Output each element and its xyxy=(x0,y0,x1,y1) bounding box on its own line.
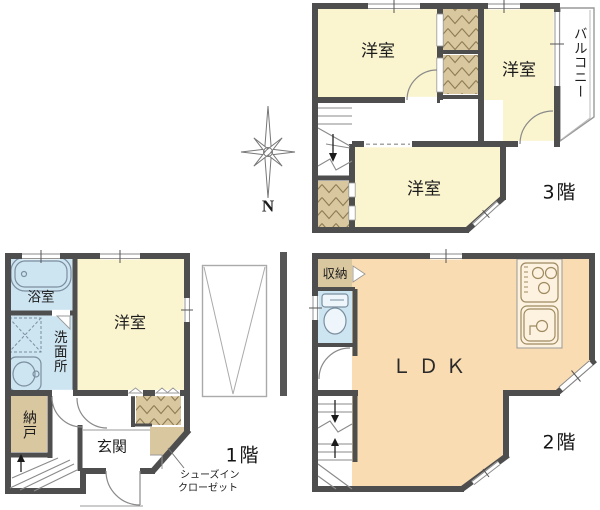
boundary-wall xyxy=(280,252,287,396)
floor3-label: 3階 xyxy=(542,184,577,203)
floor3-room-top-left-label: 洋室 xyxy=(361,44,395,61)
shoe-closet-label-line2: クローゼット xyxy=(178,484,238,494)
floor2-storage-label: 収納 xyxy=(322,268,347,281)
shoe-closet-leader-line xyxy=(168,448,184,468)
floor-plan-canvas: 洋室 洋室 洋室 バルコニー 3階 浴室 洗面所 洋室 納戸 玄関 シューズイン… xyxy=(0,0,600,510)
bathroom-label: 浴室 xyxy=(28,291,55,305)
floor2-label: 2階 xyxy=(542,434,577,453)
closet-icon xyxy=(136,396,181,425)
floor3-room-top-right-label: 洋室 xyxy=(502,63,536,80)
washroom-label: 洗面所 xyxy=(51,330,65,374)
floor3-room-bottom-label: 洋室 xyxy=(407,182,441,199)
toilet-icon xyxy=(322,294,348,334)
compass-icon xyxy=(241,106,295,198)
stairs-down-arrow xyxy=(329,153,337,162)
ldk-label: ＬＤＫ xyxy=(392,356,473,376)
parking-space-icon xyxy=(203,266,267,397)
storage-room-label: 納戸 xyxy=(22,410,36,440)
balcony-label: バルコニー xyxy=(571,27,585,100)
compass-north-label: N xyxy=(262,198,274,215)
stairs-icon xyxy=(10,458,77,491)
kitchen-counter xyxy=(517,259,562,348)
entrance-label: 玄関 xyxy=(97,440,127,455)
floor1-label: 1階 xyxy=(225,447,260,466)
shoe-closet-label-line1: シューズイン xyxy=(180,471,240,481)
floor1-western-room-label: 洋室 xyxy=(114,315,146,331)
